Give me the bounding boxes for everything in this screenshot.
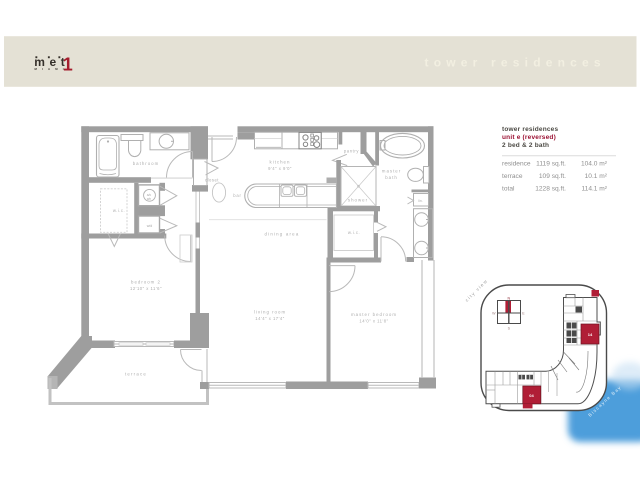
svg-text:109 sq.ft.: 109 sq.ft. bbox=[539, 173, 566, 180]
svg-text:1228 sq.ft.: 1228 sq.ft. bbox=[535, 185, 566, 192]
svg-text:w.i.c.: w.i.c. bbox=[113, 208, 125, 213]
svg-text:terrace: terrace bbox=[125, 372, 147, 377]
svg-text:104.0 m²: 104.0 m² bbox=[581, 160, 608, 167]
svg-text:2 bed & 2 bath: 2 bed & 2 bath bbox=[502, 142, 549, 149]
svg-text:shower: shower bbox=[348, 197, 368, 202]
svg-text:dining area: dining area bbox=[265, 231, 300, 236]
svg-text:tower residences: tower residences bbox=[425, 56, 606, 70]
svg-text:tower residences: tower residences bbox=[502, 126, 558, 133]
svg-text:unit e (reversed): unit e (reversed) bbox=[502, 134, 556, 141]
svg-text:9'4" x 9'0": 9'4" x 9'0" bbox=[268, 166, 292, 171]
svg-text:master: master bbox=[382, 169, 401, 174]
svg-text:w/d: w/d bbox=[147, 224, 153, 228]
svg-text:terrace: terrace bbox=[502, 173, 523, 180]
svg-text:pantry: pantry bbox=[344, 149, 360, 154]
svg-text:14: 14 bbox=[588, 332, 593, 337]
svg-text:1119 sq.ft.: 1119 sq.ft. bbox=[536, 160, 566, 167]
svg-text:bedroom 2: bedroom 2 bbox=[131, 280, 161, 285]
svg-text:lin.: lin. bbox=[418, 199, 423, 203]
svg-text:114.1 m²: 114.1 m² bbox=[581, 185, 607, 192]
svg-text:N: N bbox=[507, 297, 510, 301]
svg-text:1: 1 bbox=[63, 55, 73, 75]
svg-text:residence: residence bbox=[502, 160, 531, 167]
svg-text:10.1 m²: 10.1 m² bbox=[585, 173, 608, 180]
svg-text:bathroom: bathroom bbox=[133, 161, 160, 166]
svg-text:kitchen: kitchen bbox=[270, 160, 291, 165]
svg-text:14'4" x 17'4": 14'4" x 17'4" bbox=[255, 316, 284, 321]
svg-text:04: 04 bbox=[529, 393, 534, 398]
svg-text:W: W bbox=[492, 311, 496, 315]
svg-text:closet: closet bbox=[205, 178, 219, 183]
svg-text:living room: living room bbox=[254, 310, 286, 315]
svg-text:total: total bbox=[502, 185, 515, 192]
svg-text:MIAMI: MIAMI bbox=[35, 67, 69, 71]
svg-text:12'10" x 11'6": 12'10" x 11'6" bbox=[130, 286, 162, 291]
svg-text:bar: bar bbox=[233, 193, 241, 198]
svg-text:master bedroom: master bedroom bbox=[351, 312, 397, 317]
svg-text:w.i.c.: w.i.c. bbox=[348, 230, 360, 235]
svg-text:bath: bath bbox=[385, 175, 398, 180]
svg-text:wh: wh bbox=[147, 197, 151, 201]
svg-text:14'0" x 11'8": 14'0" x 11'8" bbox=[359, 319, 388, 324]
